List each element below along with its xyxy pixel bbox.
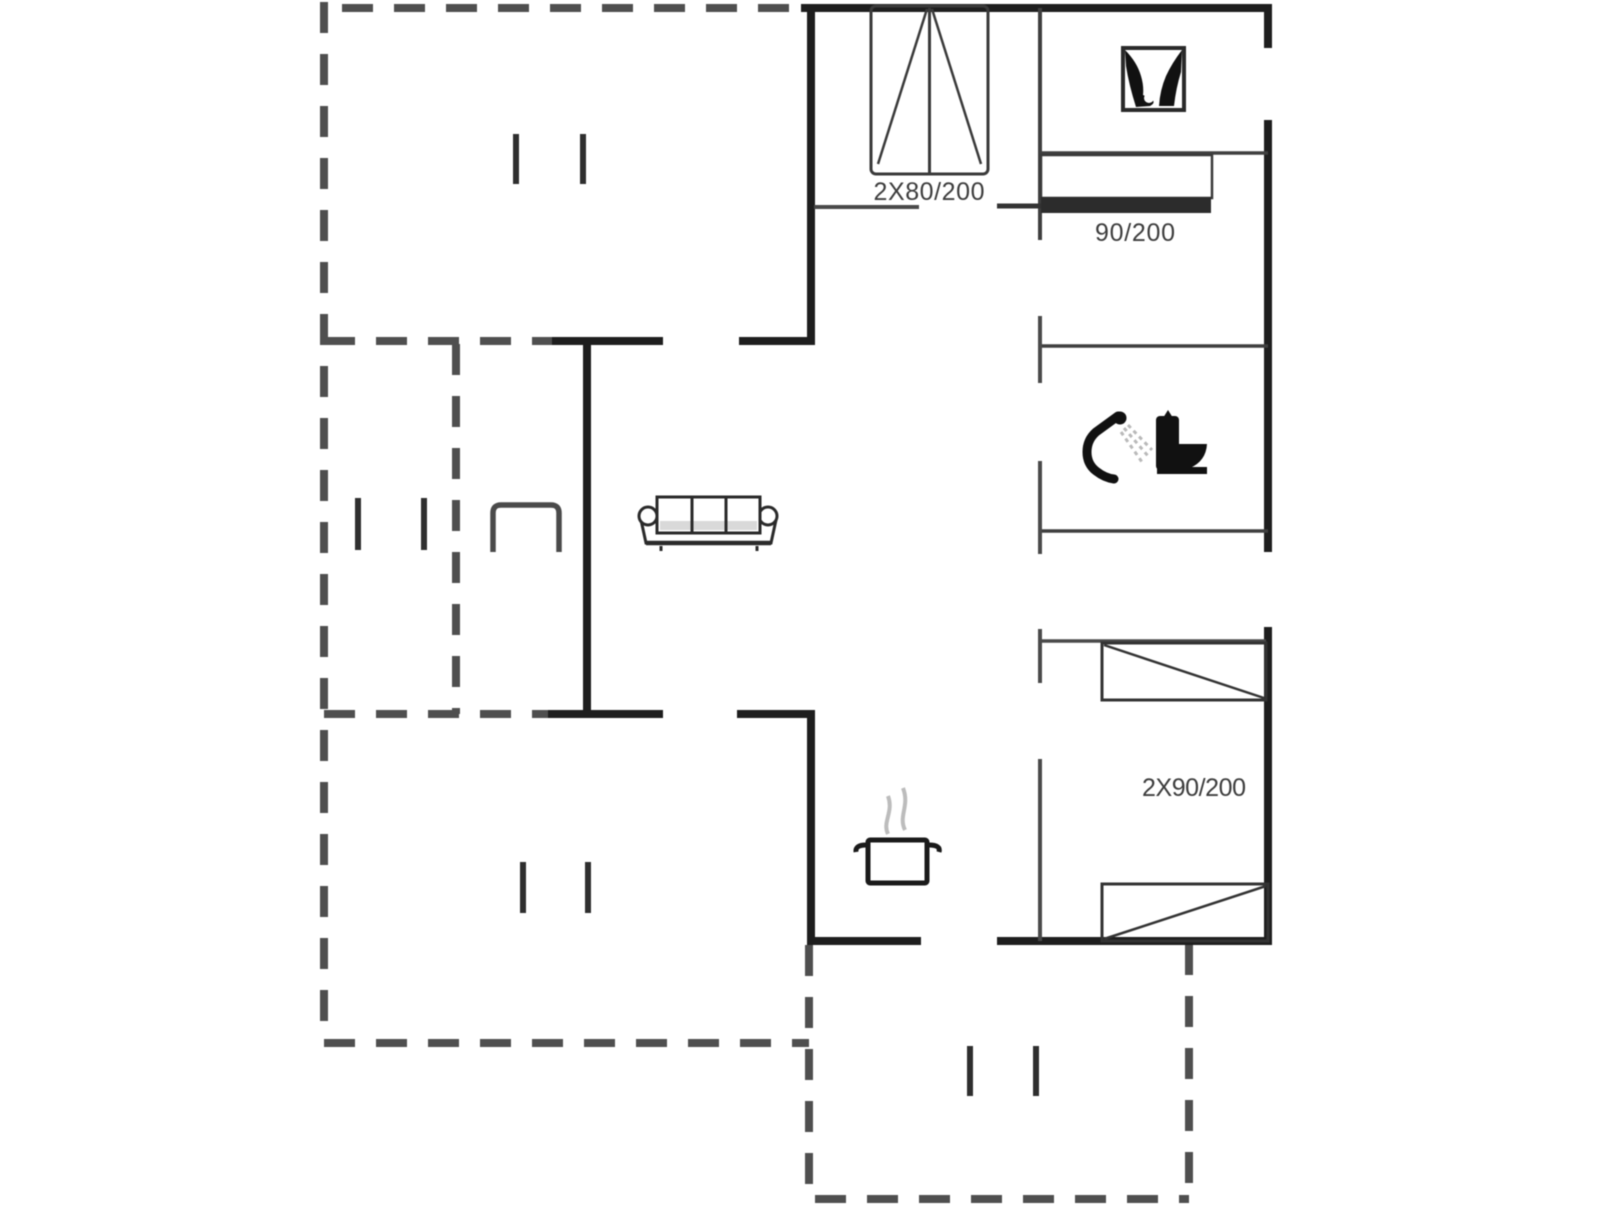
svg-text:2X90/200: 2X90/200 [1142, 774, 1246, 802]
svg-text:2X80/200: 2X80/200 [874, 178, 985, 206]
svg-text:90/200: 90/200 [1095, 219, 1175, 247]
